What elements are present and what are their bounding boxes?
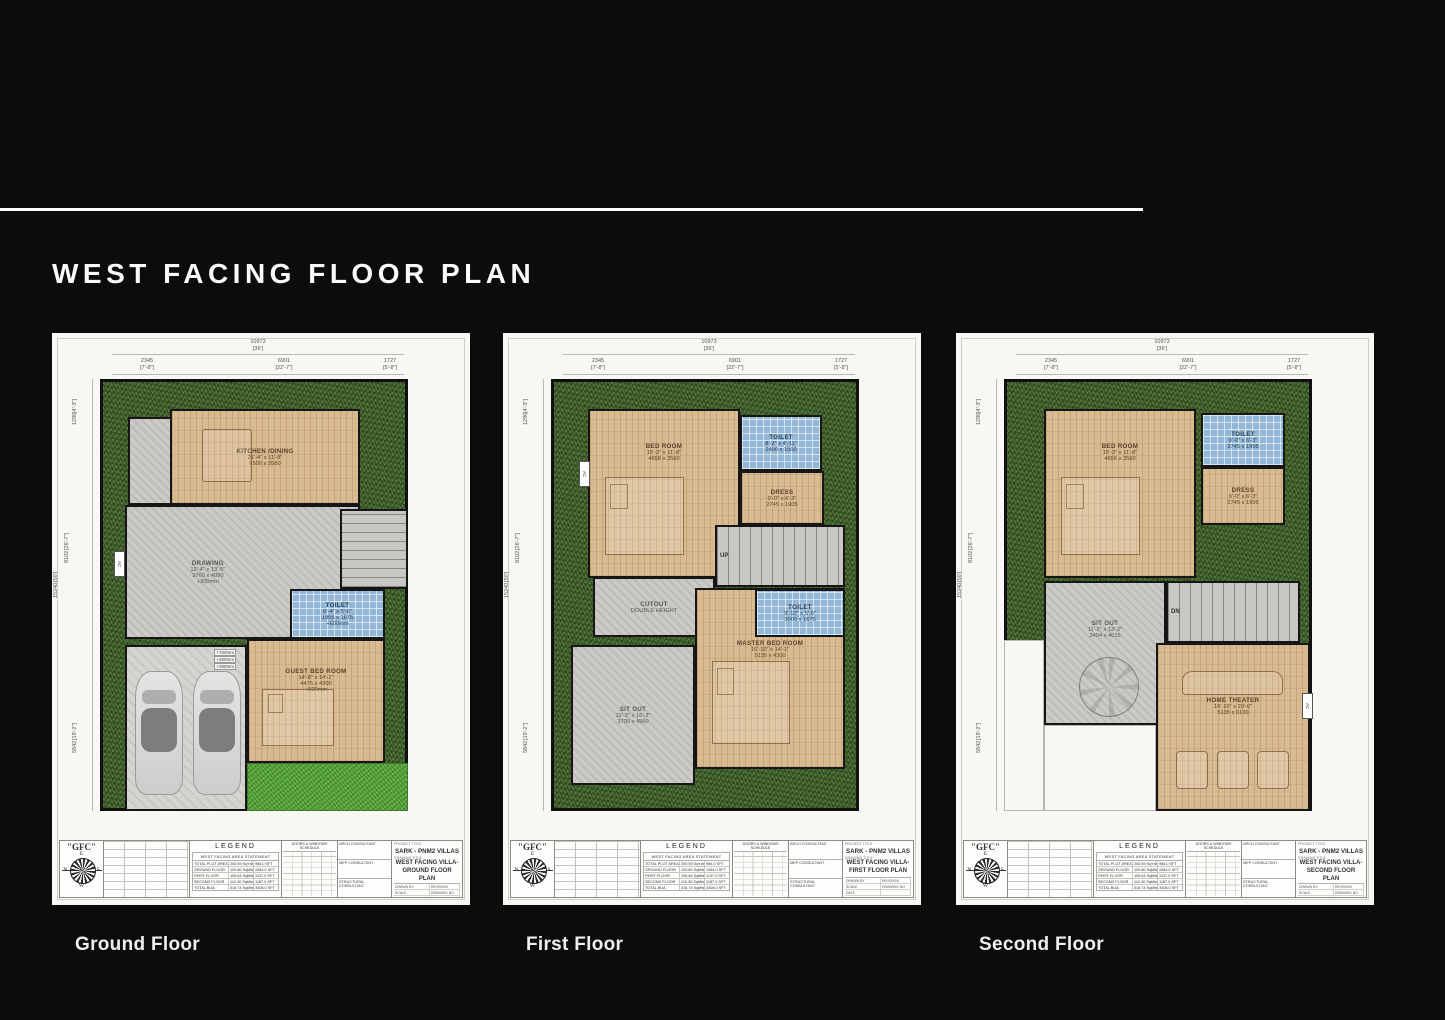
room-toilet: TOILET6'-4" x 5'-6"1955 x 1675+600mm	[290, 589, 385, 639]
floor-plan-sheet-ground-floor: 10973 [36'] 2345 [7'-8"] 6901 [22'-7"] 1…	[52, 333, 470, 905]
consultant-label: MEP CONSULTANT	[789, 860, 842, 879]
compass-letter: W	[79, 883, 84, 889]
compass-disc-icon	[70, 858, 96, 884]
consultant-label: ARCH CONSULTANT	[338, 841, 391, 860]
schedule-title: DOORS & WINDOWS SCHEDULE	[1187, 842, 1240, 852]
room-kitchen-dining: KITCHEN /DINING21'-4" x 11'-8"6500 x 356…	[170, 409, 360, 505]
room-ac: AC	[114, 551, 125, 577]
room-ac: AC	[579, 461, 590, 487]
area-statement-rows: TOTAL PLOT AREA200.59 SqYds966.0 SFTGROU…	[193, 861, 278, 890]
area-statement-rows: TOTAL PLOT AREA200.59 SqYds966.0 SFTGROU…	[644, 861, 729, 890]
room-bed-room: BED ROOM15'-3" x 11'-8"4656 x 3560	[1044, 409, 1196, 578]
room-open-2	[1044, 725, 1156, 811]
schedule-grid	[734, 852, 787, 896]
logo-block: "GFC" E W N S	[60, 841, 104, 897]
area-statement-title: WEST FACING AREA STATEMENT	[644, 853, 729, 861]
project-block: PROJECT TITLE SARK - PNM2 VILLAS DRAWING…	[392, 841, 462, 897]
room-guest-bed-room: GUEST BED ROOM14'-8" x 14'-1"4475 x 4300…	[247, 639, 385, 763]
compass-letter: E	[984, 851, 987, 857]
consultant-label: STRUCTURAL CONSULTANT	[1242, 879, 1295, 897]
compass-icon: E W N S	[969, 853, 1003, 887]
consultant-label: MEP CONSULTANT	[338, 860, 391, 879]
project-title: SARK - PNM2 VILLAS	[845, 848, 911, 855]
title-block: "GFC" E W N S LEGEND WEST FACING AREA ST…	[963, 840, 1367, 898]
room-stairs-up: UP	[715, 525, 845, 587]
drawing-meta-grid: DRAWN BY REVISION SCALE DRAWING NO DATE	[394, 883, 460, 897]
room-stairs	[340, 509, 408, 589]
room-lawn	[247, 763, 408, 811]
compass-letter: N	[515, 867, 519, 873]
room-dress: DRESS9'-0" x 6'-3"2745 x 1905	[1201, 467, 1285, 525]
schedule-table: DOORS & WINDOWS SCHEDULE	[733, 841, 789, 897]
compass-letter: S	[96, 867, 99, 873]
compass-letter: N	[64, 867, 68, 873]
consultant-label: ARCH CONSULTANT	[1242, 841, 1295, 860]
logo-block: "GFC" E W N S	[511, 841, 555, 897]
rooms-layer: BED ROOM15'-3" x 11'-8"4658 x 3560TOILET…	[503, 333, 921, 905]
consultants-block: ARCH CONSULTANT MEP CONSULTANT STRUCTURA…	[1242, 841, 1296, 897]
rooms-layer: BED ROOM15'-3" x 11'-8"4656 x 3560TOILET…	[956, 333, 1374, 905]
project-title: SARK - PNM2 VILLAS	[394, 848, 460, 855]
consultant-label: STRUCTURAL CONSULTANT	[338, 879, 391, 897]
rooms-layer: KITCHEN /DINING21'-4" x 11'-8"6500 x 356…	[52, 333, 470, 905]
schedule-table: DOORS & WINDOWS SCHEDULE	[1186, 841, 1242, 897]
car	[193, 671, 241, 795]
floor-caption: Second Floor	[979, 934, 1104, 956]
room-utility	[128, 417, 172, 505]
area-row: TOTAL BUA316.74 SqMts3408.0 SFT	[193, 885, 278, 890]
drawing-meta-grid: DRAWN BY REVISION SCALE DRAWING NO DATE	[1298, 883, 1364, 897]
floor-plan-sheet-second-floor: 10973 [36'] 2345 [7'-8"] 6901 [22'-7"] 1…	[956, 333, 1374, 905]
compass-letter: N	[968, 867, 972, 873]
schedule-title: DOORS & WINDOWS SCHEDULE	[283, 842, 336, 852]
legend-block: LEGEND WEST FACING AREA STATEMENT TOTAL …	[190, 841, 282, 897]
project-block: PROJECT TITLE SARK - PNM2 VILLAS DRAWING…	[843, 841, 913, 897]
area-statement-table: WEST FACING AREA STATEMENT TOTAL PLOT AR…	[1096, 852, 1183, 891]
schedule-table: DOORS & WINDOWS SCHEDULE	[282, 841, 338, 897]
area-statement-table: WEST FACING AREA STATEMENT TOTAL PLOT AR…	[192, 852, 279, 891]
area-row: TOTAL BUA316.74 SqMts3408.0 SFT	[1097, 885, 1182, 890]
drawing-meta-grid: DRAWN BY REVISION SCALE DRAWING NO DATE	[845, 877, 911, 896]
drawing-title: WEST FACING VILLA- FIRST FLOOR PLAN	[845, 860, 911, 876]
compass-letter: E	[80, 851, 83, 857]
area-statement-rows: TOTAL PLOT AREA200.59 SqYds966.0 SFTGROU…	[1097, 861, 1182, 890]
consultant-label: ARCH CONSULTANT	[789, 841, 842, 860]
room-toilet: TOILET8'-2" x 4'-11"2490 x 1500	[740, 415, 822, 471]
room-ac: AC	[1302, 693, 1313, 719]
project-title: SARK - PNM2 VILLAS	[1298, 848, 1364, 855]
compass-letter: W	[983, 883, 988, 889]
revision-table	[104, 841, 190, 897]
area-statement-table: WEST FACING AREA STATEMENT TOTAL PLOT AR…	[643, 852, 730, 891]
project-title-label: PROJECT TITLE	[1298, 842, 1364, 846]
plans-row: 10973 [36'] 2345 [7'-8"] 6901 [22'-7"] 1…	[0, 0, 1445, 1020]
compass-disc-icon	[974, 858, 1000, 884]
project-title-label: PROJECT TITLE	[845, 842, 911, 846]
consultants-block: ARCH CONSULTANT MEP CONSULTANT STRUCTURA…	[789, 841, 843, 897]
car	[135, 671, 183, 795]
drawing-title: WEST FACING VILLA- GROUND FLOOR PLAN	[394, 860, 460, 883]
legend-title: LEGEND	[643, 843, 730, 850]
page: WEST FACING FLOOR PLAN 10973 [36'] 2345 …	[0, 0, 1445, 1020]
area-statement-title: WEST FACING AREA STATEMENT	[1097, 853, 1182, 861]
room-steps-note: +750mm+450mm+300mm	[194, 649, 236, 669]
drawing-title: WEST FACING VILLA- SECOND FLOOR PLAN	[1298, 860, 1364, 883]
room-open-1	[1004, 640, 1044, 811]
area-statement-title: WEST FACING AREA STATEMENT	[193, 853, 278, 861]
consultant-label: STRUCTURAL CONSULTANT	[789, 879, 842, 897]
schedule-grid	[1187, 852, 1240, 896]
room-sit-out: SIT OUT12'-2" x 16'-3"3700 x 4960	[571, 645, 695, 785]
logo-block: "GFC" E W N S	[964, 841, 1008, 897]
legend-block: LEGEND WEST FACING AREA STATEMENT TOTAL …	[1094, 841, 1186, 897]
room-sit-out: SIT OUT11'-2" x 13'-2"3404 x 4015	[1044, 581, 1166, 725]
floor-caption: Ground Floor	[75, 934, 200, 956]
schedule-grid	[283, 852, 336, 896]
floor-plan-sheet-first-floor: 10973 [36'] 2345 [7'-8"] 6901 [22'-7"] 1…	[503, 333, 921, 905]
schedule-title: DOORS & WINDOWS SCHEDULE	[734, 842, 787, 852]
room-toilet: TOILET9'-0" x 6'-3"2745 x 1905	[1201, 413, 1285, 467]
project-title-label: PROJECT TITLE	[394, 842, 460, 846]
room-dress: DRESS9'-0" x 6'-3"2745 x 1905	[740, 471, 824, 525]
compass-letter: S	[1000, 867, 1003, 873]
floor-caption: First Floor	[526, 934, 623, 956]
compass-letter: W	[530, 883, 535, 889]
compass-disc-icon	[521, 858, 547, 884]
compass-letter: S	[547, 867, 550, 873]
legend-title: LEGEND	[1096, 843, 1183, 850]
legend-block: LEGEND WEST FACING AREA STATEMENT TOTAL …	[641, 841, 733, 897]
consultant-label: MEP CONSULTANT	[1242, 860, 1295, 879]
room-toilet-2: TOILET9'-10" x 5'-6"3000 x 1675	[755, 589, 845, 637]
room-home-theater: HOME THEATER16'-10" x 20'-0"5135 x 6100	[1156, 643, 1310, 811]
compass-icon: E W N S	[65, 853, 99, 887]
title-block: "GFC" E W N S LEGEND WEST FACING AREA ST…	[510, 840, 914, 898]
legend-title: LEGEND	[192, 843, 279, 850]
area-row: TOTAL BUA316.74 SqMts3408.0 SFT	[644, 885, 729, 890]
compass-letter: E	[531, 851, 534, 857]
revision-table	[1008, 841, 1094, 897]
compass-icon: E W N S	[516, 853, 550, 887]
title-block: "GFC" E W N S LEGEND WEST FACING AREA ST…	[59, 840, 463, 898]
room-stairs-dn: DN	[1166, 581, 1300, 643]
project-block: PROJECT TITLE SARK - PNM2 VILLAS DRAWING…	[1296, 841, 1366, 897]
consultants-block: ARCH CONSULTANT MEP CONSULTANT STRUCTURA…	[338, 841, 392, 897]
revision-table	[555, 841, 641, 897]
